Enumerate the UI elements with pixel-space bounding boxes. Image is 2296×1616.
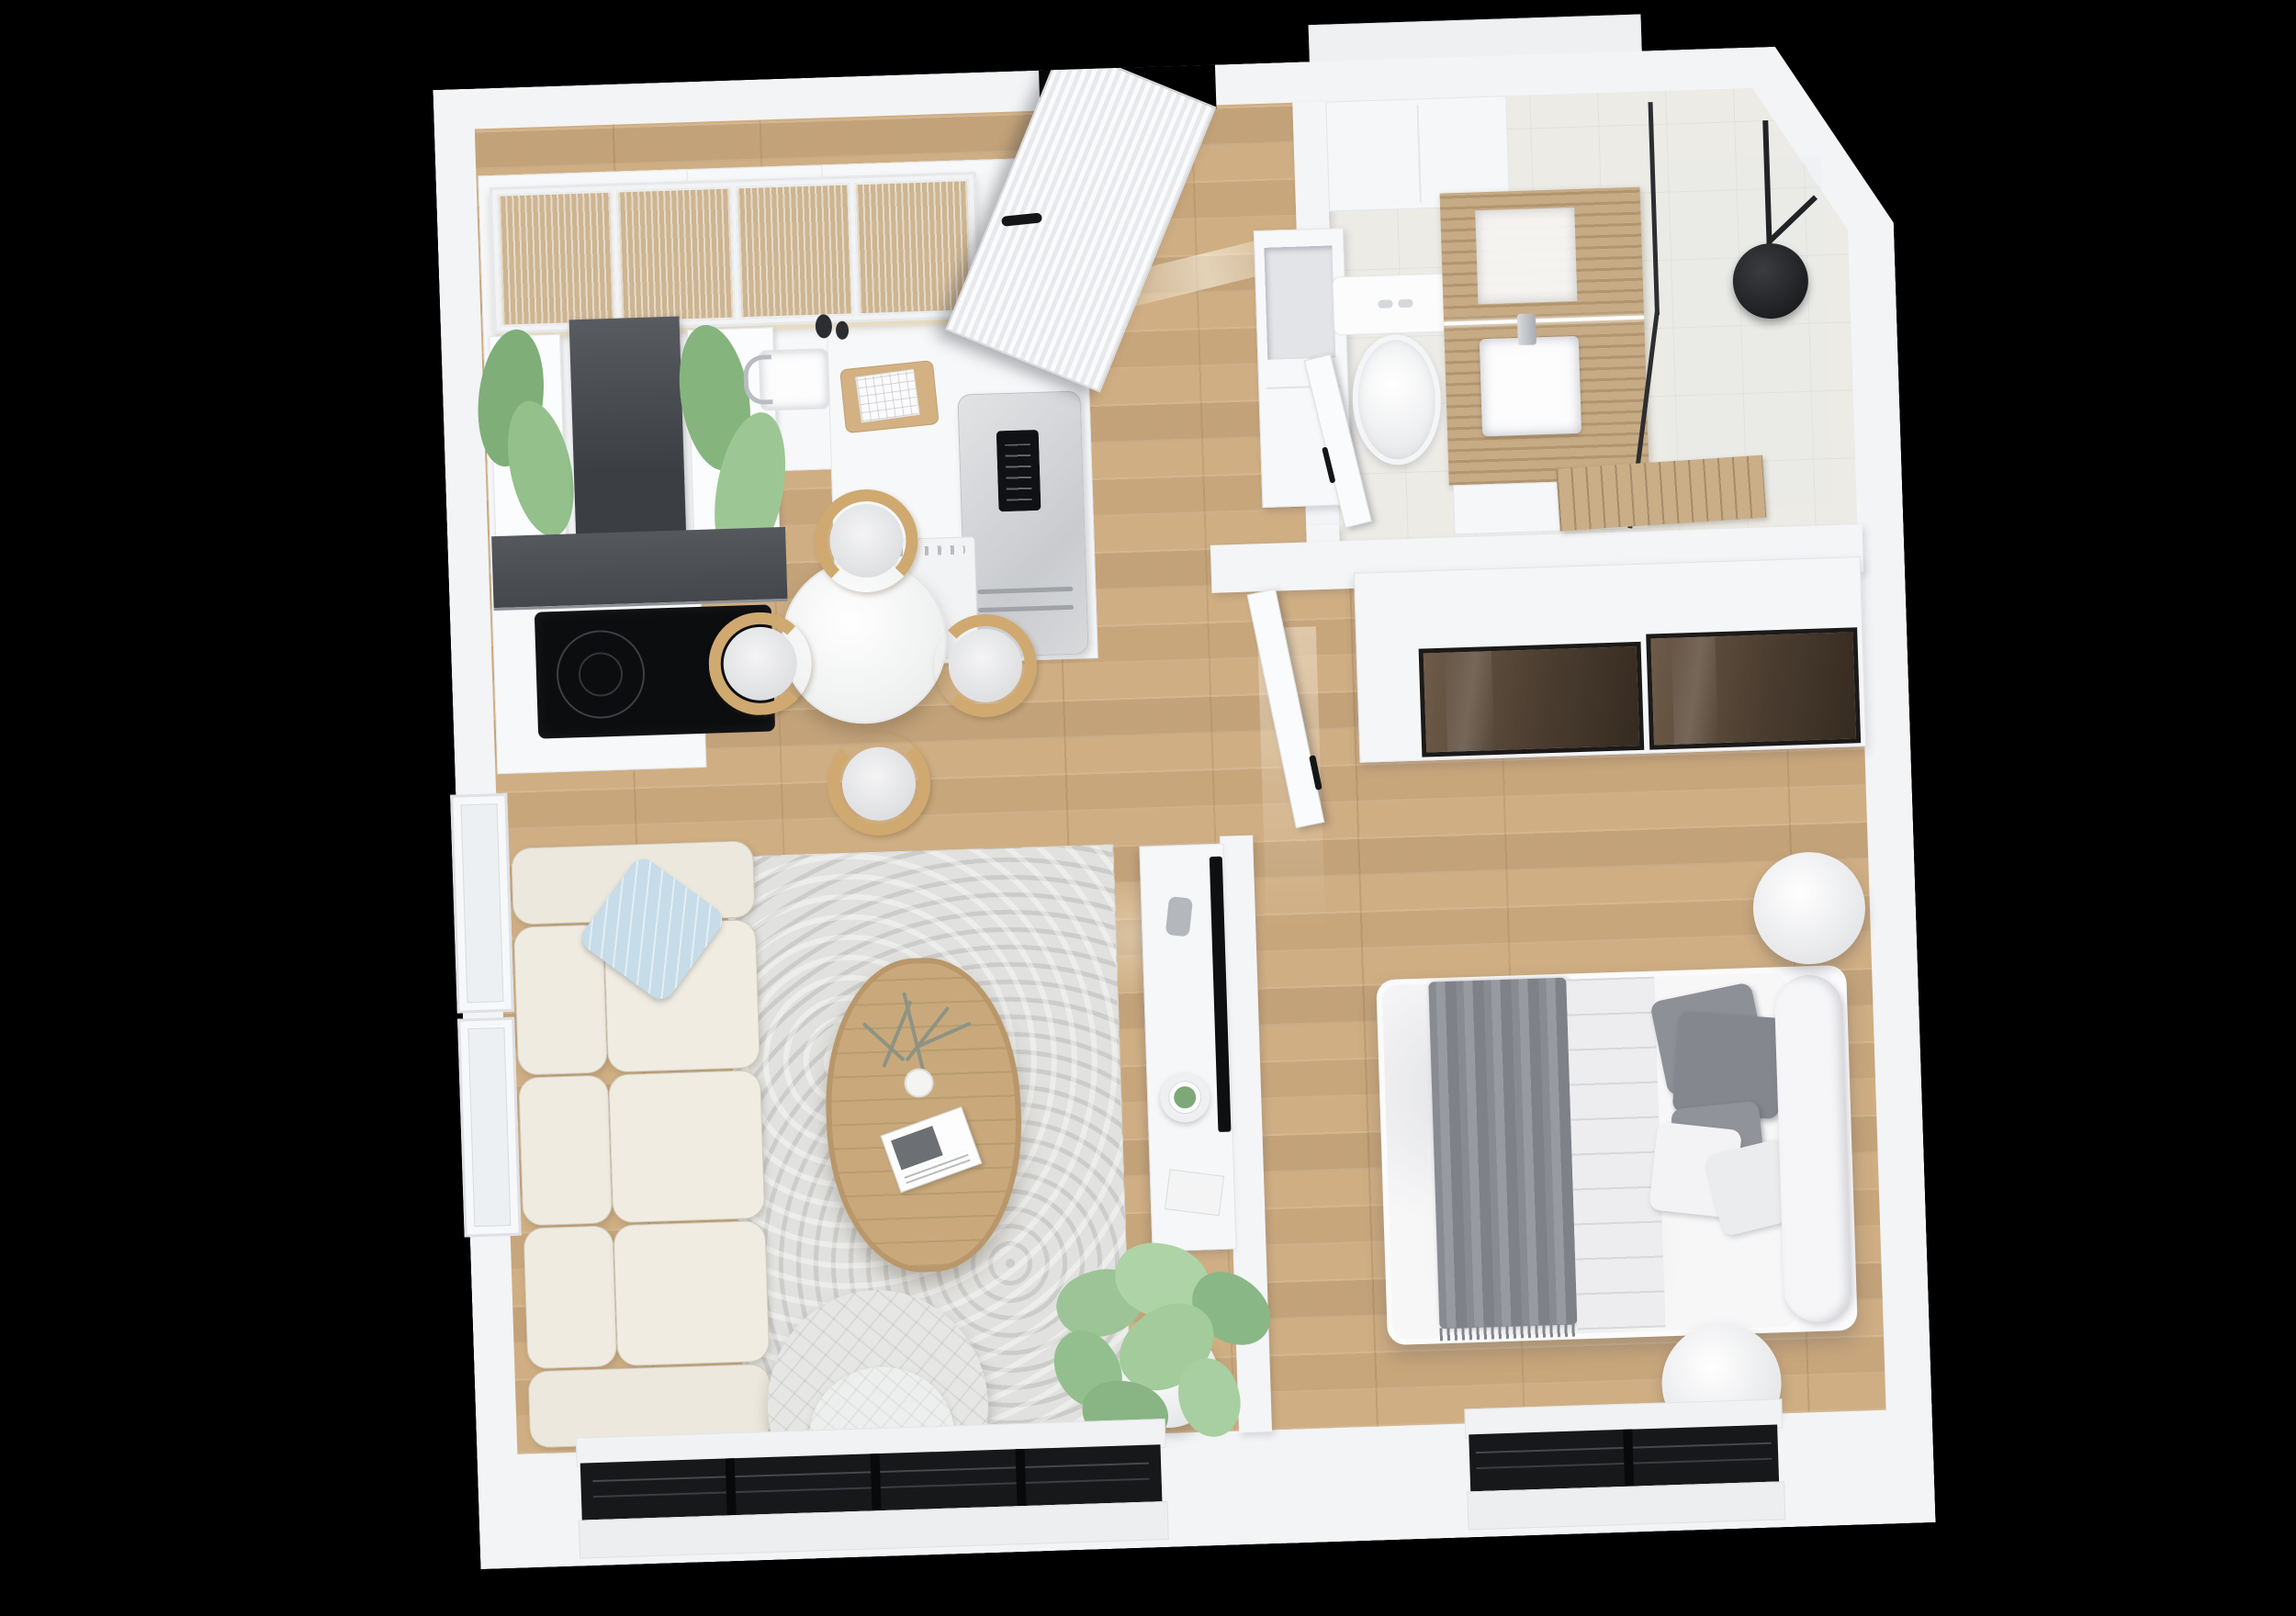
mirror-reflection-sink bbox=[1475, 208, 1577, 304]
window-mullion bbox=[726, 1458, 737, 1515]
fridge-handle bbox=[978, 605, 1074, 612]
toilet-cistern bbox=[1332, 273, 1457, 335]
glass-reflection bbox=[1445, 651, 1494, 752]
sink-faucet bbox=[1517, 313, 1536, 345]
render-stage bbox=[0, 0, 2296, 1616]
window-glass bbox=[467, 1027, 511, 1227]
throw-blanket bbox=[1428, 978, 1577, 1330]
flush-button bbox=[1378, 299, 1392, 309]
reeded-glass-pane bbox=[735, 183, 853, 319]
window-glass bbox=[461, 803, 504, 1003]
window-mullion bbox=[871, 1453, 882, 1510]
sofa-back-cushion bbox=[523, 1225, 617, 1369]
kitchen-upper-cabinets bbox=[490, 172, 981, 334]
chair-seat bbox=[828, 503, 905, 579]
sofa-back-cushion bbox=[518, 1074, 613, 1226]
reeded-glass-pane bbox=[616, 187, 735, 323]
decor-book bbox=[1165, 1169, 1224, 1216]
floorplan-scene bbox=[433, 43, 1935, 1569]
sofa-seat-cushion bbox=[613, 1220, 770, 1366]
fridge-handle bbox=[977, 587, 1073, 594]
folded-blanket bbox=[1566, 977, 1665, 1330]
reeded-glass-pane bbox=[497, 191, 615, 327]
cabinet-seam bbox=[1416, 105, 1421, 202]
vessel-sink bbox=[1480, 336, 1581, 436]
left-wall-window bbox=[450, 793, 514, 1014]
chair-seat bbox=[841, 746, 917, 822]
range-hood-chimney bbox=[569, 316, 687, 540]
bolster-cushion bbox=[1773, 974, 1852, 1323]
wardrobe-sliding-door bbox=[1646, 627, 1861, 749]
decor-figurine bbox=[1165, 896, 1193, 937]
chair-seat bbox=[722, 626, 798, 702]
niche-shelf bbox=[1264, 245, 1335, 359]
wardrobe bbox=[1354, 556, 1866, 763]
range-hood-canopy bbox=[491, 527, 787, 611]
window-mullion bbox=[1016, 1449, 1027, 1506]
window-mullion bbox=[1623, 1430, 1634, 1487]
sofa-seat-cushion bbox=[608, 1070, 765, 1223]
apartment-floorplan bbox=[433, 43, 1935, 1569]
wardrobe-sliding-door bbox=[1419, 642, 1645, 757]
flush-button bbox=[1398, 299, 1412, 309]
door-handle bbox=[1001, 212, 1042, 226]
reeded-glass-pane bbox=[854, 179, 973, 315]
left-wall-window bbox=[457, 1017, 522, 1238]
kitchen-towel bbox=[855, 369, 919, 422]
glass-reflection bbox=[1671, 636, 1718, 745]
bedroom-window bbox=[1469, 1425, 1779, 1492]
chair-seat bbox=[948, 628, 1024, 704]
herb-planter bbox=[489, 334, 567, 549]
fridge-control-panel bbox=[996, 430, 1041, 511]
